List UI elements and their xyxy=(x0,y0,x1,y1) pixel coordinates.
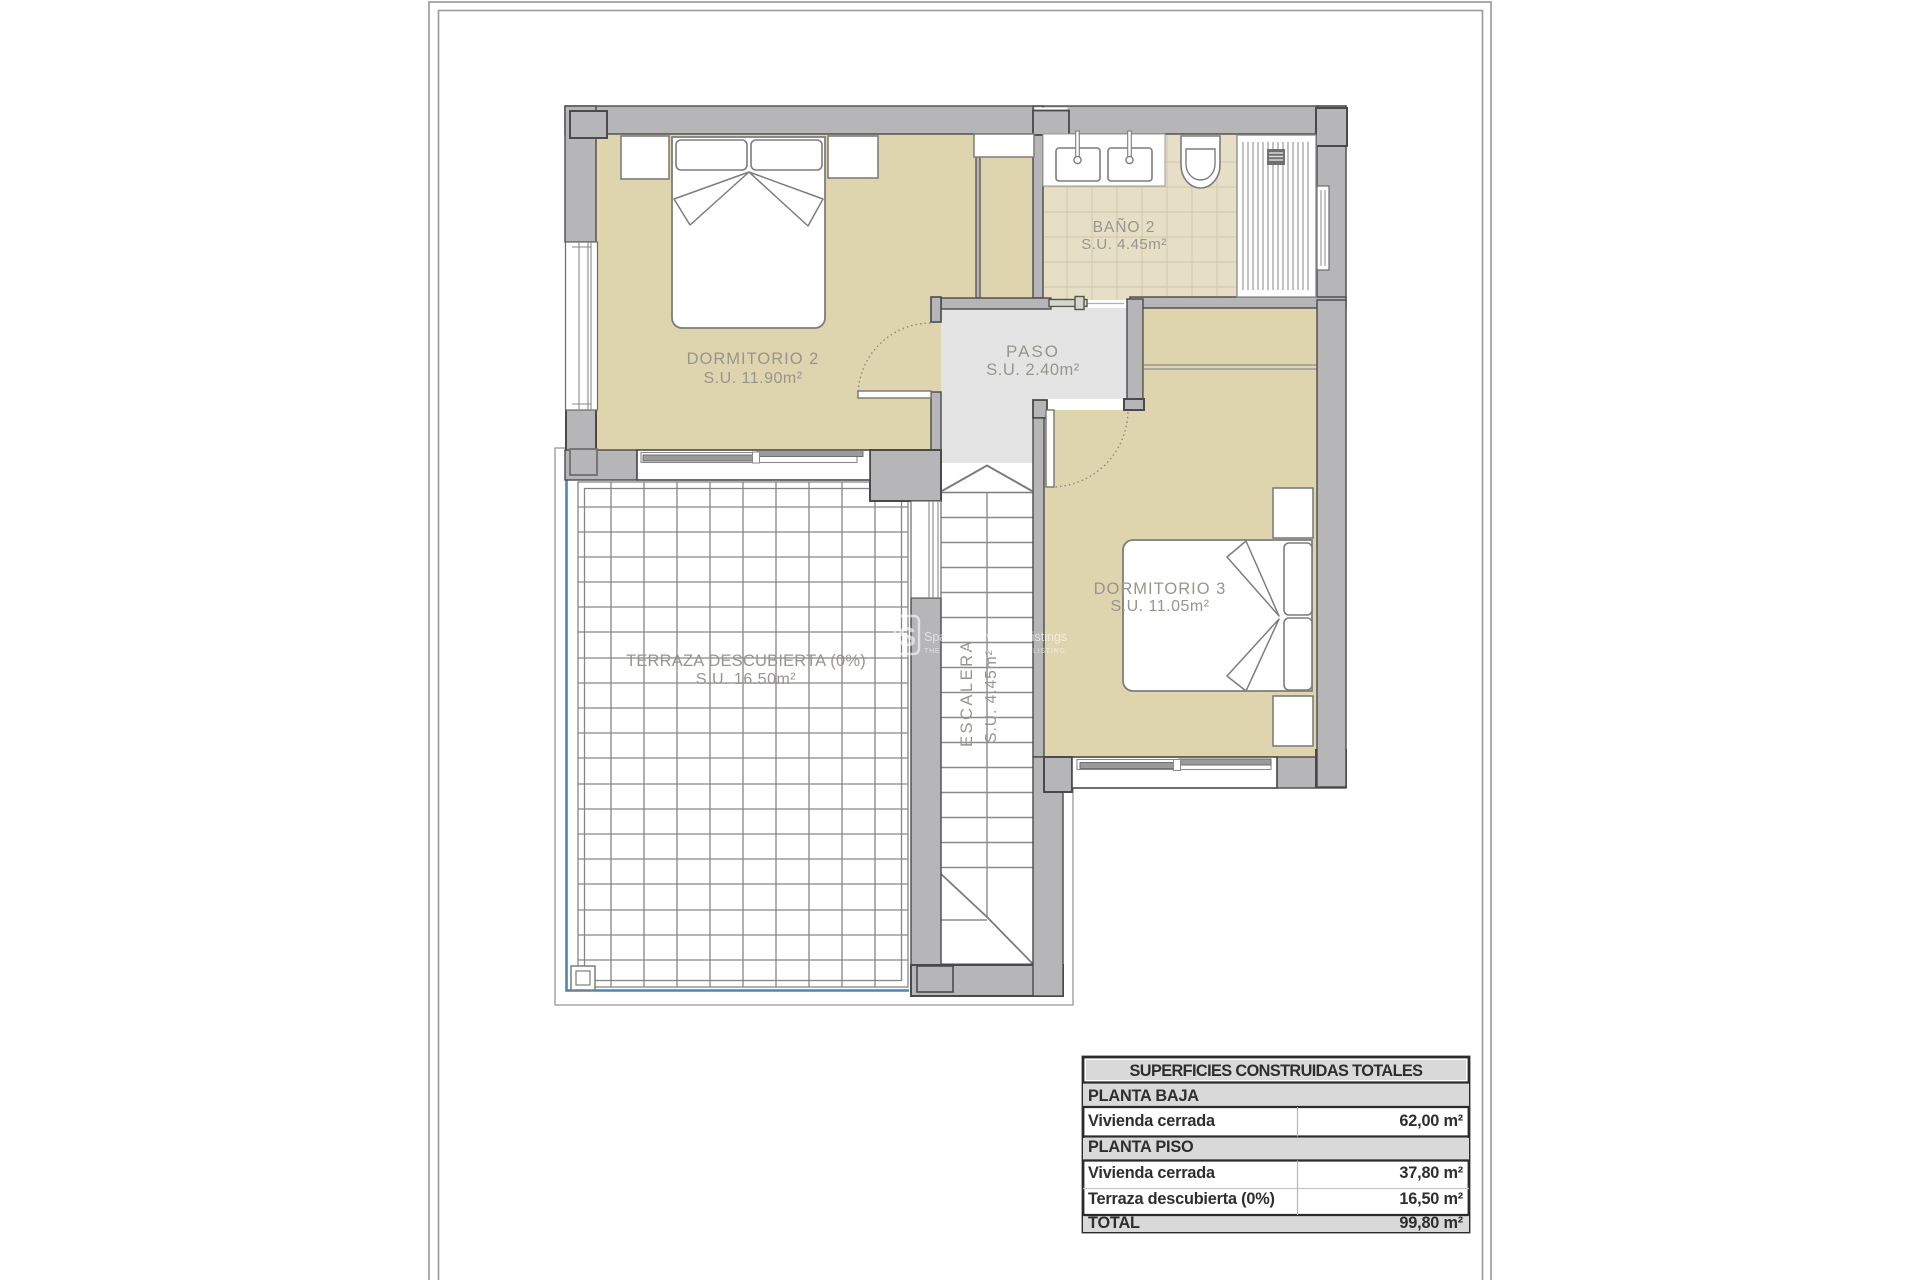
svg-text:SUPERFICIES CONSTRUIDAS TOTALE: SUPERFICIES CONSTRUIDAS TOTALES xyxy=(1130,1062,1424,1080)
svg-text:S.U. 11.05m²: S.U. 11.05m² xyxy=(1110,598,1209,615)
svg-text:TOTAL: TOTAL xyxy=(1088,1214,1140,1232)
svg-text:Vivienda cerrada: Vivienda cerrada xyxy=(1088,1164,1216,1182)
svg-text:ESCALERA: ESCALERA xyxy=(958,639,976,747)
svg-text:PASO: PASO xyxy=(1006,342,1060,361)
svg-text:S: S xyxy=(898,622,916,652)
svg-text:Spanish new build listings: Spanish new build listings xyxy=(924,630,1067,644)
svg-text:S.U. 11.90m²: S.U. 11.90m² xyxy=(703,370,802,387)
svg-text:TERRAZA DESCUBIERTA (0%): TERRAZA DESCUBIERTA (0%) xyxy=(626,652,866,670)
svg-text:PLANTA PISO: PLANTA PISO xyxy=(1088,1138,1193,1156)
svg-text:PLANTA BAJA: PLANTA BAJA xyxy=(1088,1087,1199,1105)
svg-text:Terraza descubierta (0%): Terraza descubierta (0%) xyxy=(1088,1190,1275,1208)
svg-text:62,00 m²: 62,00 m² xyxy=(1399,1112,1463,1130)
svg-text:16,50 m²: 16,50 m² xyxy=(1399,1190,1463,1208)
svg-text:DORMITORIO 3: DORMITORIO 3 xyxy=(1094,580,1227,598)
svg-text:BAÑO 2: BAÑO 2 xyxy=(1093,219,1156,236)
svg-text:Vivienda cerrada: Vivienda cerrada xyxy=(1088,1112,1216,1130)
svg-text:S.U. 2.40m²: S.U. 2.40m² xyxy=(986,361,1080,379)
svg-text:99,80 m²: 99,80 m² xyxy=(1399,1214,1463,1232)
svg-text:S.U. 16.50m²: S.U. 16.50m² xyxy=(696,671,796,688)
svg-text:DORMITORIO 2: DORMITORIO 2 xyxy=(687,350,820,368)
svg-text:S.U. 4.45m²: S.U. 4.45m² xyxy=(983,649,1000,743)
svg-text:THE LARGEST NEW BUILD LISTING: THE LARGEST NEW BUILD LISTING xyxy=(924,648,1066,655)
svg-text:S.U. 4.45m²: S.U. 4.45m² xyxy=(1081,236,1167,253)
svg-text:37,80 m²: 37,80 m² xyxy=(1399,1164,1463,1182)
